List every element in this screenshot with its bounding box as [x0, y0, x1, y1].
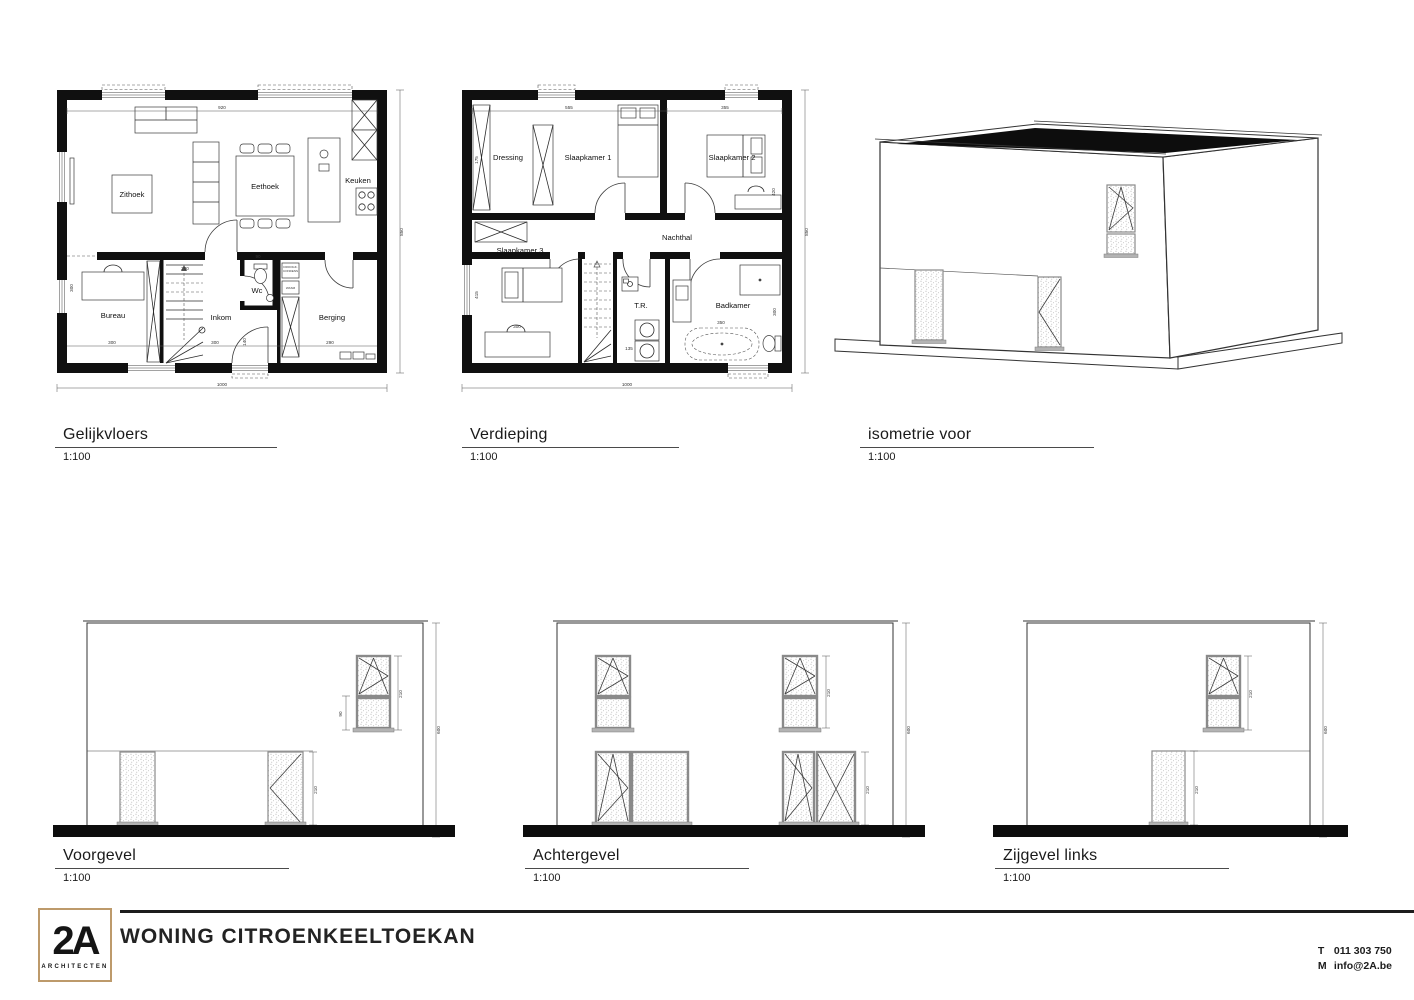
title-underline	[525, 868, 749, 869]
door-symbol	[550, 183, 720, 289]
contact-info: T011 303 750 Minfo@2A.be	[1318, 944, 1392, 974]
ground-bar	[53, 825, 455, 837]
title-isometrie: isometrie voor 1:100	[868, 426, 1100, 463]
svg-text:555: 555	[565, 105, 573, 110]
tall-cabinet	[352, 100, 377, 160]
upper-window	[353, 656, 394, 732]
drawing-title: Gelijkvloers	[63, 426, 283, 444]
door-symbol	[205, 220, 237, 252]
title-underline	[860, 447, 1094, 448]
drawing-title: Verdieping	[470, 426, 685, 444]
svg-text:300: 300	[69, 284, 74, 292]
phone-number: 011 303 750	[1334, 945, 1392, 957]
title-zijgevel-links: Zijgevel links 1:100	[1003, 847, 1235, 884]
title-achtergevel: Achtergevel 1:100	[533, 847, 755, 884]
title-underline	[55, 447, 277, 448]
svg-text:175: 175	[474, 156, 479, 164]
ground-bar	[993, 825, 1348, 837]
upper-window	[779, 656, 821, 732]
side-face	[1163, 138, 1318, 358]
contact-email: Minfo@2A.be	[1318, 959, 1392, 974]
svg-text:300: 300	[211, 340, 219, 345]
architect-logo: 2A ARCHITECTEN	[38, 908, 112, 982]
wardrobe	[473, 105, 553, 242]
svg-text:1000: 1000	[622, 382, 633, 387]
drawing-sheet: DROOGK. CONDENS WASM	[0, 0, 1414, 1000]
room-label: Keuken	[345, 176, 371, 185]
room-label: Slaapkamer 2	[709, 153, 756, 162]
title-underline	[462, 447, 679, 448]
title-verdieping: Verdieping 1:100	[470, 426, 685, 463]
logo-subtext: ARCHITECTEN	[41, 964, 108, 970]
email-label: M	[1318, 959, 1334, 974]
drawing-title: isometrie voor	[868, 426, 1100, 444]
door-symbol	[325, 252, 353, 288]
svg-text:210: 210	[1248, 690, 1253, 698]
room-label: Wc	[252, 286, 263, 295]
svg-text:415: 415	[474, 291, 479, 299]
logo-text: 2A	[52, 921, 97, 961]
drawing-scale: 1:100	[470, 451, 685, 463]
svg-text:290: 290	[326, 340, 334, 345]
kitchen-island	[308, 138, 340, 222]
room-label: Dressing	[493, 153, 523, 162]
phone-label: T	[1318, 944, 1334, 959]
title-underline	[995, 868, 1229, 869]
svg-text:600: 600	[436, 726, 441, 734]
elevation-achtergevel: 210 210 600	[510, 608, 930, 858]
drawing-scale: 1:100	[63, 451, 283, 463]
svg-text:210: 210	[865, 786, 870, 794]
title-underline	[55, 868, 289, 869]
svg-text:210: 210	[1194, 786, 1199, 794]
drawing-scale: 1:100	[1003, 872, 1235, 884]
svg-text:90: 90	[338, 711, 343, 717]
radiator	[70, 158, 74, 204]
drawing-scale: 1:100	[63, 872, 295, 884]
email-address: info@2A.be	[1334, 960, 1392, 972]
door-symbol	[232, 327, 268, 363]
room-label: Slaapkamer 3	[497, 246, 544, 255]
svg-text:300: 300	[108, 340, 116, 345]
svg-text:600: 600	[906, 726, 911, 734]
svg-text:CONDENS: CONDENS	[283, 269, 298, 273]
room-label: Badkamer	[716, 301, 751, 310]
svg-text:140: 140	[242, 338, 247, 346]
bed-single	[485, 268, 562, 357]
lower-window	[779, 752, 859, 826]
lower-window	[592, 752, 692, 826]
room-label: Eethoek	[251, 182, 279, 191]
contact-phone: T011 303 750	[1318, 944, 1392, 959]
door-opening	[117, 752, 158, 826]
room-label: Slaapkamer 1	[565, 153, 612, 162]
door-opening	[1149, 751, 1188, 826]
svg-text:1000: 1000	[217, 382, 228, 387]
svg-text:850: 850	[399, 228, 404, 236]
svg-text:920: 920	[218, 105, 226, 110]
iso-window-upper	[1104, 185, 1138, 258]
isometric-view	[830, 95, 1370, 405]
svg-text:135: 135	[625, 346, 633, 351]
title-voorgevel: Voorgevel 1:100	[63, 847, 295, 884]
svg-text:600: 600	[1323, 726, 1328, 734]
desk	[82, 265, 144, 300]
svg-text:210: 210	[826, 689, 831, 697]
elevation-zijgevel-links: 210 210 600	[980, 608, 1360, 858]
wc-room	[240, 260, 277, 310]
svg-text:350: 350	[717, 320, 725, 325]
bed-double	[618, 105, 658, 177]
svg-text:WASM: WASM	[286, 286, 296, 290]
drawing-scale: 1:100	[868, 451, 1100, 463]
svg-text:90: 90	[255, 254, 261, 259]
room-label: Inkom	[211, 313, 232, 322]
stairs-symbol	[166, 265, 205, 363]
svg-text:200: 200	[181, 266, 189, 271]
footer-rule	[120, 910, 1414, 913]
iso-door	[1035, 277, 1064, 351]
svg-text:300: 300	[772, 308, 777, 316]
room-label: T.R.	[634, 301, 648, 310]
ground-bar	[523, 825, 925, 837]
plan-gelijkvloers: DROOGK. CONDENS WASM	[40, 80, 420, 400]
stairs-symbol	[584, 261, 611, 362]
room-label: Nachthal	[662, 233, 692, 242]
bathroom-fixtures	[673, 265, 781, 360]
cooktop	[356, 188, 377, 215]
svg-text:850: 850	[804, 228, 809, 236]
room-label: Zithoek	[120, 190, 145, 199]
svg-text:210: 210	[398, 690, 403, 698]
svg-text:300: 300	[513, 324, 521, 329]
drawing-title: Voorgevel	[63, 847, 295, 865]
svg-text:420: 420	[771, 188, 776, 196]
svg-text:210: 210	[313, 786, 318, 794]
svg-text:355: 355	[721, 105, 729, 110]
room-label: Bureau	[101, 311, 126, 320]
elevation-voorgevel: 210 90 210 600	[40, 608, 460, 858]
room-label: Berging	[319, 313, 345, 322]
upper-window	[592, 656, 634, 732]
drawing-title: Zijgevel links	[1003, 847, 1235, 865]
window-symbol	[57, 85, 352, 378]
shelf-unit	[193, 142, 219, 224]
iso-window-ground	[912, 270, 946, 344]
bed-double	[707, 135, 781, 209]
plan-verdieping: Dressing Slaapkamer 1 Slaapkamer 2 Slaap…	[445, 80, 825, 400]
project-title: WONING CITROENKEELTOEKAN	[120, 925, 476, 949]
drawing-scale: 1:100	[533, 872, 755, 884]
door-opening	[265, 752, 306, 826]
title-gelijkvloers: Gelijkvloers 1:100	[63, 426, 283, 463]
drawing-title: Achtergevel	[533, 847, 755, 865]
upper-window	[1203, 656, 1244, 732]
